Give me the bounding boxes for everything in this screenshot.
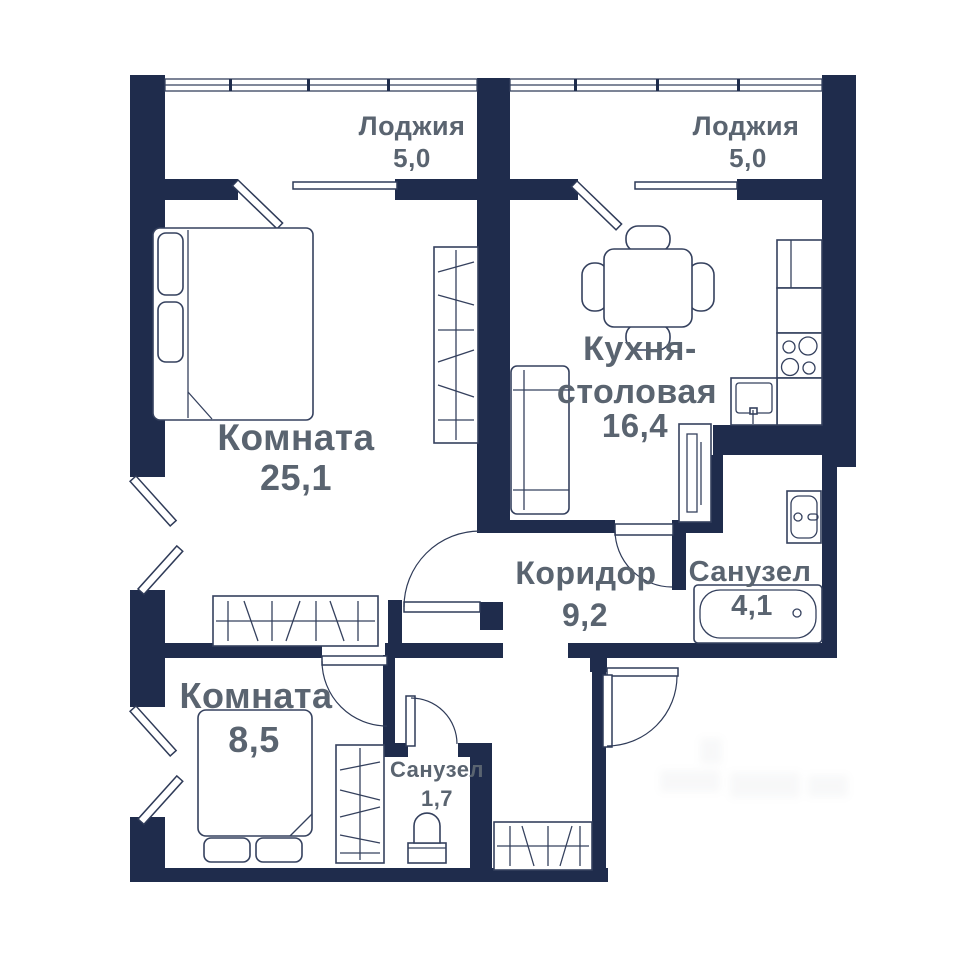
area-room-main: 25,1 <box>260 457 332 498</box>
label-bathroom-small: Санузел <box>390 757 484 782</box>
label-corridor: Коридор <box>515 555 656 591</box>
area-loggia-left: 5,0 <box>393 143 431 173</box>
kitchen-sink-icon <box>731 378 777 425</box>
floor-plan: Лоджия 5,0 Лоджия 5,0 Комната 25,1 Кухня… <box>0 0 960 960</box>
area-kitchen: 16,4 <box>602 407 668 444</box>
wardrobe-small-room <box>336 745 384 863</box>
wardrobe-main-east <box>434 247 478 443</box>
label-kitchen-line2: столовая <box>557 373 717 411</box>
wardrobe-hall <box>494 822 592 870</box>
label-bathroom-big: Санузел <box>689 556 812 588</box>
window-sill-right <box>635 182 737 189</box>
fridge-icon <box>777 240 822 288</box>
label-kitchen-line1: Кухня- <box>583 330 697 368</box>
chair-icon <box>626 226 670 252</box>
area-bathroom-small: 1,7 <box>421 786 453 811</box>
label-room-small: Комната <box>179 675 333 716</box>
label-loggia-right: Лоджия <box>693 111 800 141</box>
wardrobe-main-south <box>213 596 378 646</box>
stove-icon <box>777 333 822 378</box>
hall-cabinet <box>679 424 711 522</box>
double-bed-main <box>153 228 313 420</box>
area-loggia-right: 5,0 <box>729 143 767 173</box>
label-room-main: Комната <box>217 417 374 458</box>
floor-plan-svg: Лоджия 5,0 Лоджия 5,0 Комната 25,1 Кухня… <box>0 0 960 960</box>
area-room-small: 8,5 <box>228 719 280 760</box>
area-corridor: 9,2 <box>562 597 608 633</box>
window-sill-left <box>293 182 397 189</box>
cabinet-icon <box>777 288 822 333</box>
label-loggia-left: Лоджия <box>359 111 466 141</box>
washbasin-icon <box>787 491 821 543</box>
area-bathroom-big: 4,1 <box>731 590 773 622</box>
